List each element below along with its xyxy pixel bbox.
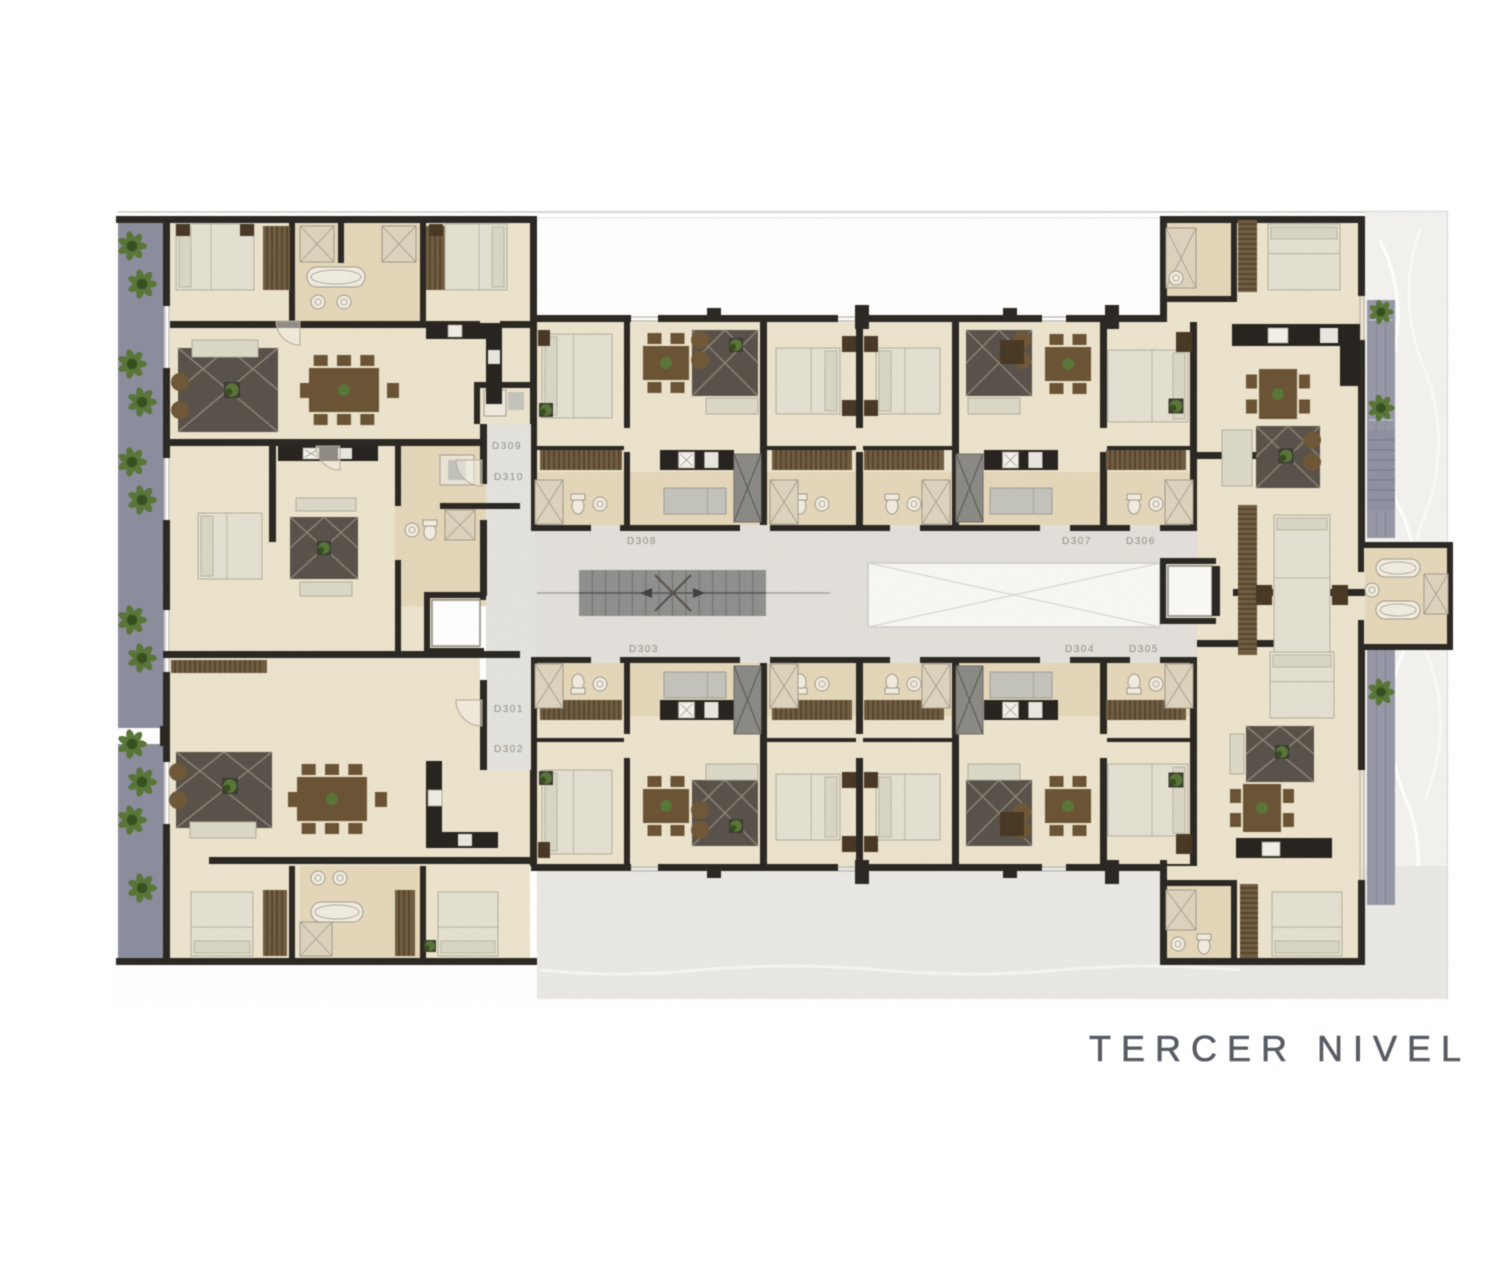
svg-text:D304: D304 (1065, 644, 1095, 655)
svg-text:D309: D309 (492, 441, 522, 452)
svg-text:D307: D307 (1062, 536, 1092, 547)
svg-text:D308: D308 (627, 536, 657, 547)
svg-text:D306: D306 (1126, 536, 1156, 547)
svg-text:TERCER NIVEL: TERCER NIVEL (1089, 1028, 1471, 1069)
svg-text:D302: D302 (494, 744, 524, 755)
svg-text:D305: D305 (1129, 644, 1159, 655)
svg-text:D303: D303 (629, 644, 659, 655)
svg-text:D301: D301 (494, 704, 524, 715)
svg-text:D310: D310 (494, 472, 524, 483)
